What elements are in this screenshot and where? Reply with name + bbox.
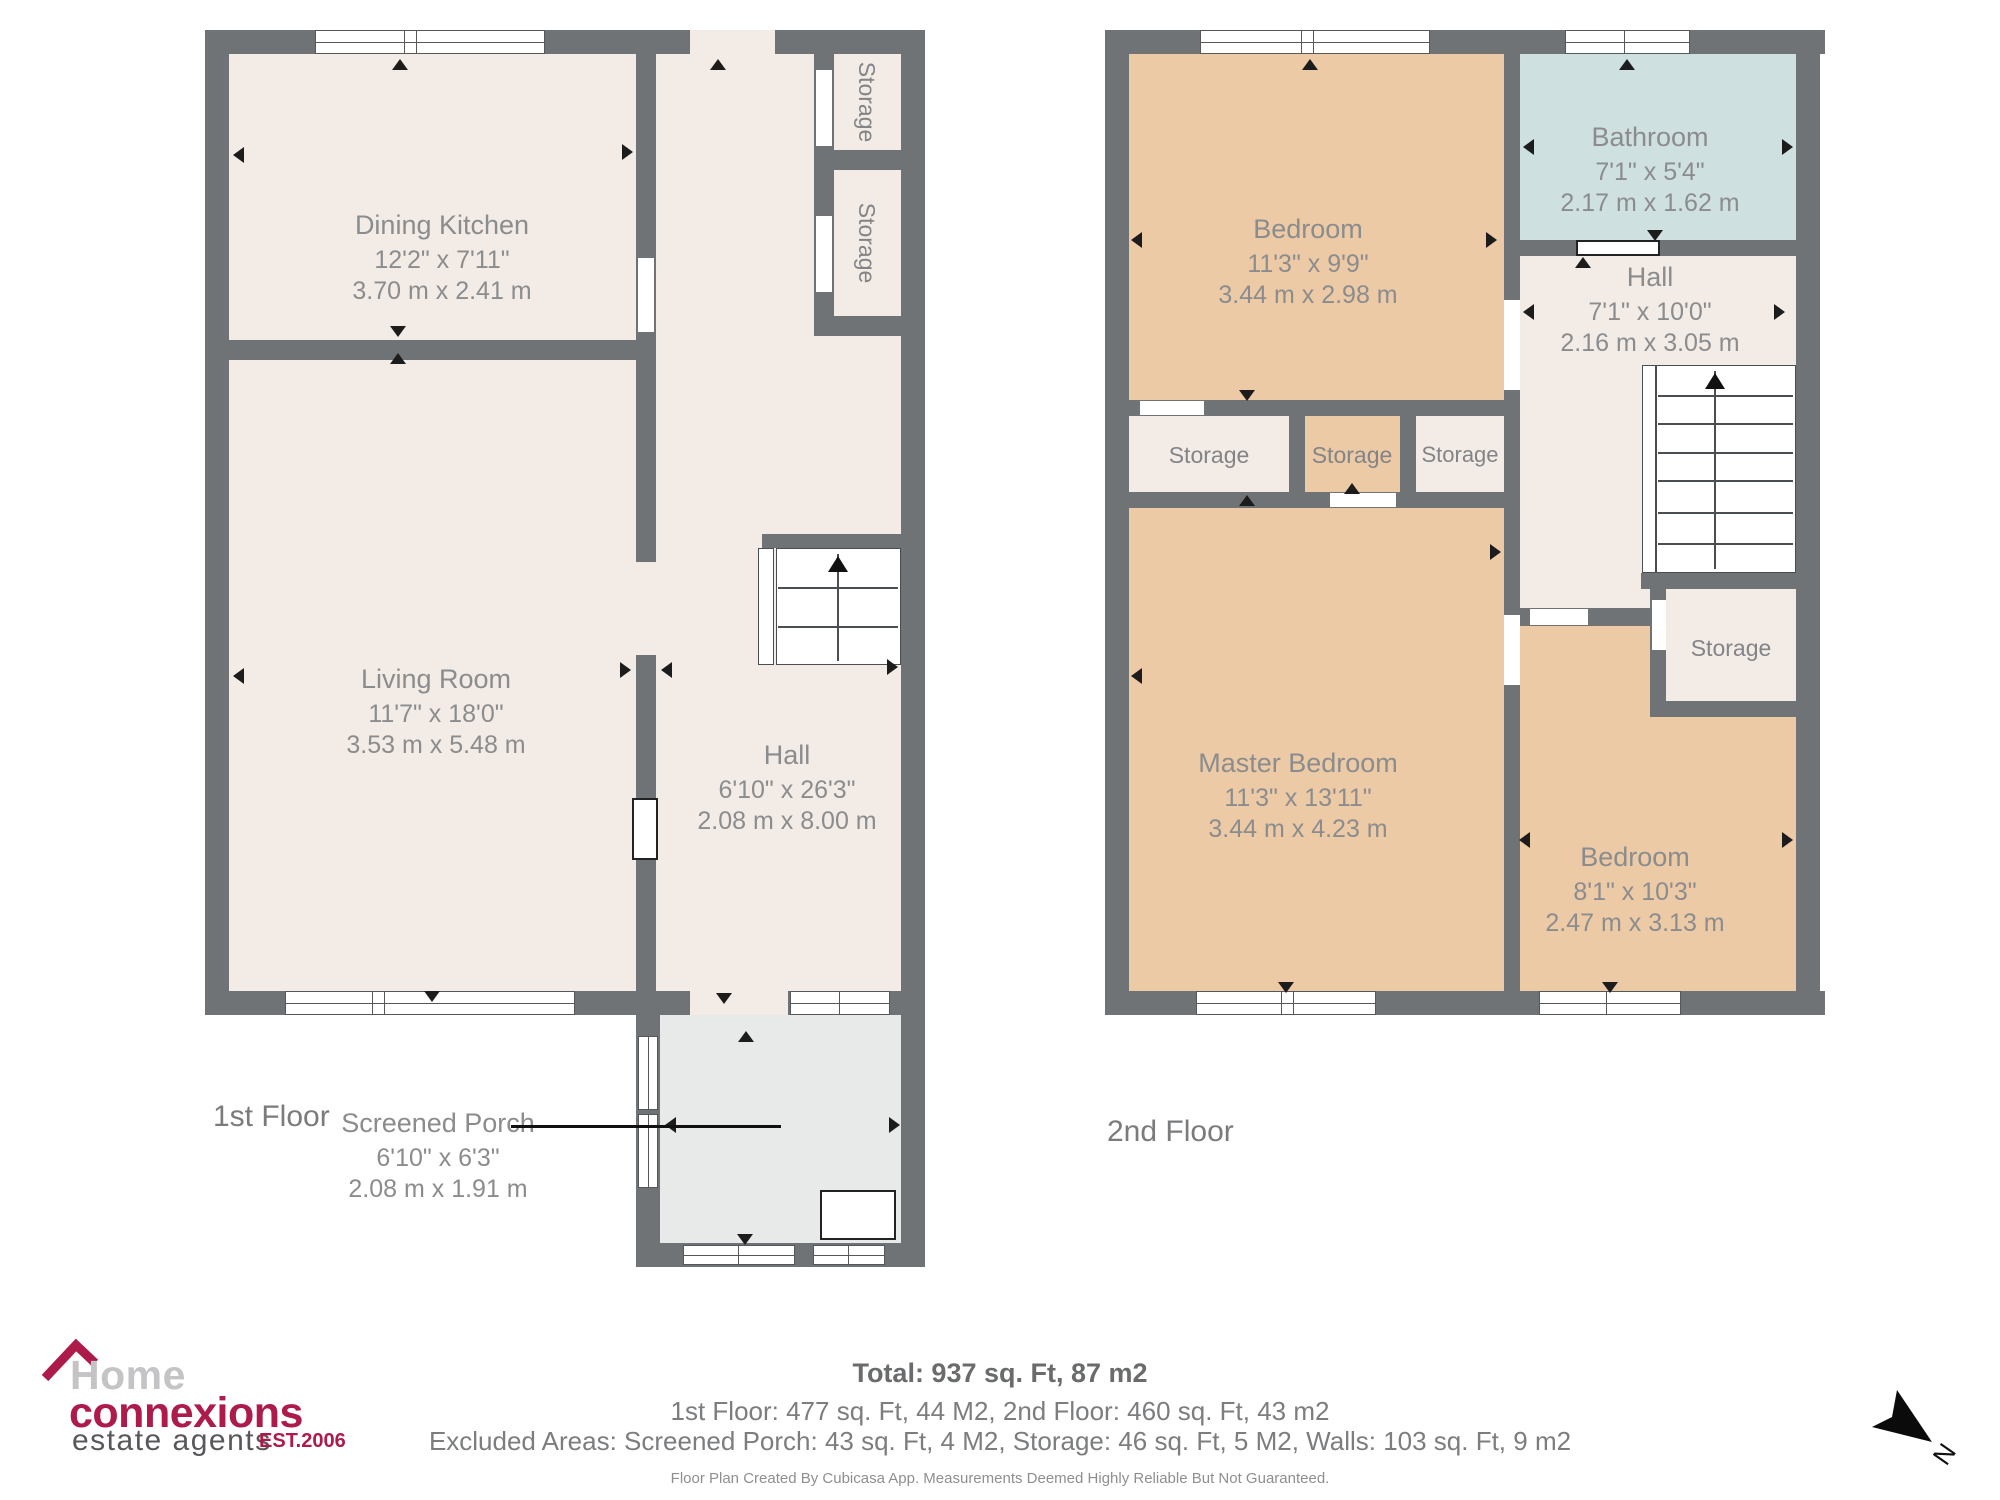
stairs-up-arrow-icon (1705, 373, 1725, 389)
room-dims-m: 2.17 m x 1.62 m (1525, 188, 1775, 219)
swing-marker-icon (1490, 544, 1501, 560)
stair-tread (1658, 480, 1793, 482)
stair-tread (1658, 423, 1793, 425)
stairs-divider (1714, 371, 1716, 569)
window-pane-line (1197, 1003, 1375, 1004)
swing-marker-icon (738, 1031, 754, 1042)
room-name: Bedroom (1253, 214, 1363, 244)
stairs-up-arrow-icon (828, 556, 848, 572)
door-opening (816, 216, 832, 292)
room-dims-ft: 7'1" x 10'0" (1525, 297, 1775, 328)
wall (814, 316, 901, 336)
room-name: Bedroom (1580, 842, 1690, 872)
room-label-storage-1b: Storage (852, 183, 882, 303)
swing-marker-icon (1131, 232, 1142, 248)
room-dims-m: 2.08 m x 8.00 m (662, 806, 912, 837)
window (638, 1036, 658, 1110)
window (1200, 30, 1430, 54)
window-pane-line (1201, 42, 1429, 43)
room-dims-ft: 11'3" x 9'9" (1158, 249, 1458, 280)
window-mullion (1293, 992, 1294, 1014)
stair-tread (1658, 395, 1793, 397)
swing-marker-icon (1774, 304, 1785, 320)
window-mullion (839, 992, 840, 1014)
swing-marker-icon (889, 1117, 900, 1133)
room-dims-ft: 11'3" x 13'11" (1148, 783, 1448, 814)
wall (229, 340, 656, 360)
swing-marker-icon (1782, 139, 1793, 155)
stairs-stringer (758, 548, 774, 665)
doorway-opening (690, 991, 788, 1015)
room-name: Bathroom (1591, 122, 1708, 152)
window (1196, 991, 1376, 1015)
room-name: Screened Porch (341, 1108, 535, 1138)
swing-marker-icon (1239, 495, 1255, 506)
room-name: Hall (1627, 262, 1674, 292)
window-pane-line (814, 1255, 884, 1256)
stair-tread (1658, 543, 1793, 545)
window-pane-line (1566, 42, 1689, 43)
swing-marker-icon (737, 1234, 753, 1245)
wall (1650, 701, 1820, 717)
window-mullion (404, 31, 405, 53)
door-opening (1652, 600, 1666, 650)
swing-marker-icon (1647, 230, 1663, 241)
window-mullion (1606, 992, 1607, 1014)
logo-established: EST.2006 (259, 1430, 346, 1453)
room-dims-m: 3.53 m x 5.48 m (286, 730, 586, 761)
floor-plan-page: Dining Kitchen 12'2" x 7'11" 3.70 m x 2.… (0, 0, 2000, 1500)
room-dims-ft: 12'2" x 7'11" (292, 245, 592, 276)
door-leaf (820, 1190, 896, 1240)
door-leaf (632, 798, 658, 860)
room-dims-m: 3.44 m x 4.23 m (1148, 814, 1448, 845)
room-dims-m: 3.44 m x 2.98 m (1158, 280, 1458, 311)
swing-marker-icon (233, 147, 244, 163)
room-dims-m: 2.47 m x 3.13 m (1510, 908, 1760, 939)
window-mullion (1281, 992, 1282, 1014)
stair-tread (1658, 452, 1793, 454)
door-opening (1140, 401, 1204, 415)
room-dims-ft: 7'1" x 5'4" (1525, 157, 1775, 188)
room-label-bedroom-2: Bedroom 8'1" x 10'3" 2.47 m x 3.13 m (1510, 842, 1760, 939)
door-opening (638, 258, 654, 332)
summary-disclaimer: Floor Plan Created By Cubicasa App. Meas… (0, 1470, 2000, 1487)
room-label-storage-2c: Storage (1400, 440, 1520, 470)
window-mullion (384, 992, 385, 1014)
window (1565, 30, 1690, 54)
wall (762, 534, 901, 548)
room-name: Hall (764, 740, 811, 770)
door-opening (1504, 615, 1520, 685)
wall (901, 1015, 925, 1267)
window-pane-line (648, 1037, 649, 1109)
swing-marker-icon (620, 662, 631, 678)
room-label-storage-1a: Storage (852, 42, 882, 162)
window-mullion (848, 1246, 849, 1264)
room-name: Master Bedroom (1198, 748, 1398, 778)
room-label-storage-2d: Storage (1671, 633, 1791, 663)
doorway-opening (636, 562, 656, 655)
room-label-hall-1: Hall 6'10" x 26'3" 2.08 m x 8.00 m (662, 740, 912, 837)
room-name: Living Room (361, 664, 511, 694)
room-dims-ft: 6'10" x 26'3" (662, 775, 912, 806)
wall (1796, 30, 1820, 1015)
window (1539, 991, 1681, 1015)
window-mullion (372, 992, 373, 1014)
door-opening (1530, 609, 1588, 625)
summary-total: Total: 937 sq. Ft, 87 m2 (0, 1358, 2000, 1389)
doorway-opening (690, 30, 775, 54)
room-dims-ft: 6'10" x 6'3" (318, 1143, 558, 1174)
wall (1105, 30, 1129, 1015)
window-pane-line (1540, 1003, 1680, 1004)
wall (636, 360, 656, 562)
stair-tread (1658, 512, 1793, 514)
wall (205, 30, 229, 1015)
swing-marker-icon (1302, 59, 1318, 70)
north-compass-icon: N (1850, 1375, 2000, 1495)
swing-marker-icon (887, 659, 898, 675)
window-pane-line (791, 1003, 889, 1004)
room-dims-m: 3.70 m x 2.41 m (292, 276, 592, 307)
room-name: Dining Kitchen (355, 210, 529, 240)
window-pane-line (316, 42, 544, 43)
swing-marker-icon (1619, 59, 1635, 70)
swing-marker-icon (622, 144, 633, 160)
room-label-dining-kitchen: Dining Kitchen 12'2" x 7'11" 3.70 m x 2.… (292, 210, 592, 307)
window (683, 1245, 795, 1265)
room-label-bedroom-1: Bedroom 11'3" x 9'9" 3.44 m x 2.98 m (1158, 214, 1458, 311)
floor1-interior (229, 54, 901, 991)
window-pane-line (684, 1255, 794, 1256)
room-label-storage-2b: Storage (1292, 440, 1412, 470)
swing-marker-icon (390, 326, 406, 337)
room-label-storage-2a: Storage (1149, 440, 1269, 470)
stairs-stringer (1642, 365, 1656, 573)
logo-word-estate-agents: estate agents (72, 1424, 272, 1458)
door-opening (816, 70, 832, 146)
room-dims-ft: 8'1" x 10'3" (1510, 877, 1760, 908)
swing-marker-icon (661, 662, 672, 678)
swing-marker-icon (1278, 982, 1294, 993)
room-dims-m: 2.16 m x 3.05 m (1525, 328, 1775, 359)
window-pane-line (286, 1003, 574, 1004)
swing-marker-icon (710, 59, 726, 70)
wall (1129, 492, 1504, 508)
swing-marker-icon (424, 991, 440, 1002)
swing-marker-icon (1344, 483, 1360, 494)
window-mullion (1624, 31, 1625, 53)
wall (1520, 240, 1820, 256)
window (790, 991, 890, 1015)
window-mullion (1313, 31, 1314, 53)
wall (1641, 573, 1820, 589)
room-dims-ft: 11'7" x 18'0" (286, 699, 586, 730)
swing-marker-icon (390, 353, 406, 364)
door-leaf (1576, 240, 1660, 256)
room-label-living-room: Living Room 11'7" x 18'0" 3.53 m x 5.48 … (286, 664, 586, 761)
floor2-caption: 2nd Floor (1107, 1115, 1234, 1149)
north-label: N (1927, 1438, 1962, 1471)
window-mullion (416, 31, 417, 53)
window (813, 1245, 885, 1265)
swing-marker-icon (716, 993, 732, 1004)
wall (205, 30, 925, 54)
swing-marker-icon (1131, 668, 1142, 684)
door-opening (1504, 300, 1520, 390)
swing-marker-icon (233, 668, 244, 684)
porch-leader-line (511, 1125, 781, 1128)
swing-marker-icon (1239, 390, 1255, 401)
room-dims-m: 2.08 m x 1.91 m (318, 1174, 558, 1205)
window (315, 30, 545, 54)
room-label-master-bedroom: Master Bedroom 11'3" x 13'11" 3.44 m x 4… (1148, 748, 1448, 845)
window-mullion (738, 1246, 739, 1264)
door-opening (1330, 493, 1396, 507)
floor1-caption: 1st Floor (213, 1100, 330, 1134)
wall (901, 30, 925, 1015)
swing-marker-icon (392, 59, 408, 70)
room-label-hall-2: Hall 7'1" x 10'0" 2.16 m x 3.05 m (1525, 262, 1775, 359)
swing-marker-icon (1602, 982, 1618, 993)
room-label-screened-porch: Screened Porch 6'10" x 6'3" 2.08 m x 1.9… (318, 1108, 558, 1205)
swing-marker-icon (1782, 832, 1793, 848)
room-label-bathroom: Bathroom 7'1" x 5'4" 2.17 m x 1.62 m (1525, 122, 1775, 219)
swing-marker-icon (1486, 232, 1497, 248)
window-mullion (1301, 31, 1302, 53)
